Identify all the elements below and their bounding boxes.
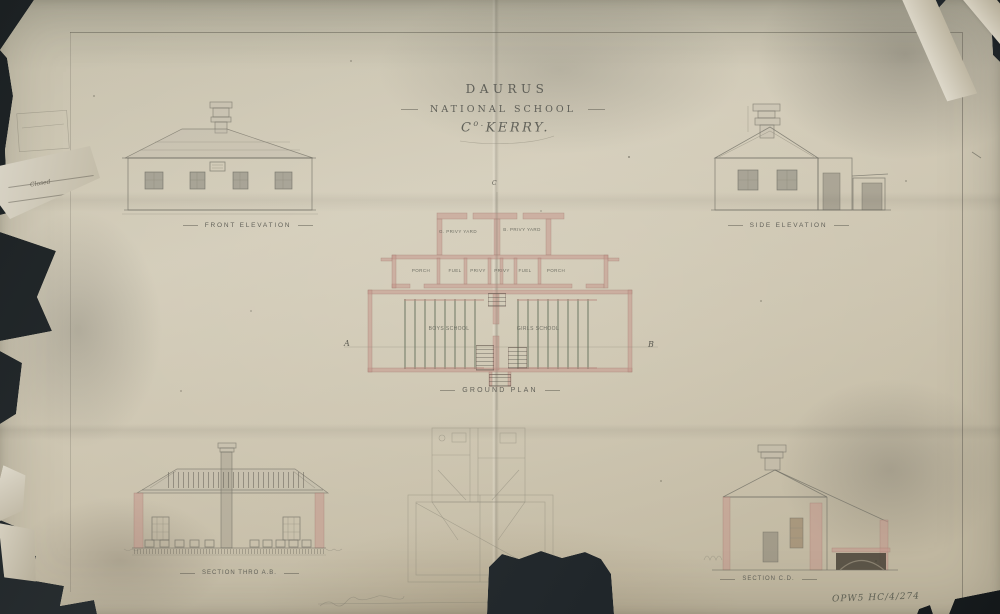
plan-label-boys-privy-yard: B. PRIVY YARD [503, 227, 540, 232]
plan-steps-hatch [508, 347, 527, 369]
plan-label-girls-school: GIRLS SCHOOL [517, 326, 559, 332]
photograph-of-architectural-drawing: DAURUS NATIONAL SCHOOL Co.KERRY. FRONT E… [0, 0, 1000, 614]
front-elevation-label: FRONT ELEVATION [168, 222, 328, 229]
flap-pencil-line [8, 175, 93, 188]
ground-plan-label: GROUND PLAN [420, 387, 580, 394]
side-elevation-drawing [711, 104, 891, 210]
sheet-border-top [70, 32, 962, 33]
plan-porch-stub-hatch [489, 374, 511, 387]
plan-label-boys-school: BOYS SCHOOL [429, 326, 470, 332]
section-ab-drawing [124, 443, 342, 555]
plan-label-porch-left: PORCH [412, 268, 430, 273]
plan-label-porch-right: PORCH [547, 268, 565, 273]
drawing-title-line2: NATIONAL SCHOOL [398, 104, 608, 115]
plan-vestibule-hatch [488, 293, 506, 307]
section-marker-b: B [648, 340, 654, 349]
girls-school-benches-hatch [517, 299, 597, 369]
plan-label-fuel-right: FUEL [518, 268, 531, 273]
drawing-title-county: Co.KERRY. [448, 119, 563, 135]
section-marker-c: C [492, 180, 497, 187]
plan-label-privy-right: PRIVY [494, 268, 510, 273]
plan-label-fuel-left: FUEL [448, 268, 461, 273]
section-marker-a: A [344, 339, 350, 348]
front-elevation-drawing [122, 102, 318, 214]
plan-steps-hatch [476, 345, 494, 371]
paper-specks [628, 156, 630, 158]
side-elevation-label: SIDE ELEVATION [716, 222, 861, 229]
floor-hatch [134, 549, 324, 554]
boys-school-benches-hatch [404, 299, 484, 369]
drawing-title-line1: DAURUS [452, 82, 562, 96]
drawing-sheet: DAURUS NATIONAL SCHOOL Co.KERRY. FRONT E… [0, 0, 1000, 614]
section-cd-label: SECTION C.D. [706, 576, 831, 582]
section-cd-drawing [704, 445, 898, 570]
plan-label-privy-left: PRIVY [470, 268, 486, 273]
pencil-sketch-drawing [408, 428, 553, 582]
plan-label-girls-privy-yard: G. PRIVY YARD [439, 229, 477, 234]
sheet-border-left [70, 32, 71, 592]
sheet-border-right [962, 32, 963, 600]
edge-handwritten-note: Closed [30, 178, 51, 188]
section-ab-label: SECTION THRO A.B. [172, 570, 307, 576]
roof-truss-hatch [168, 472, 308, 488]
